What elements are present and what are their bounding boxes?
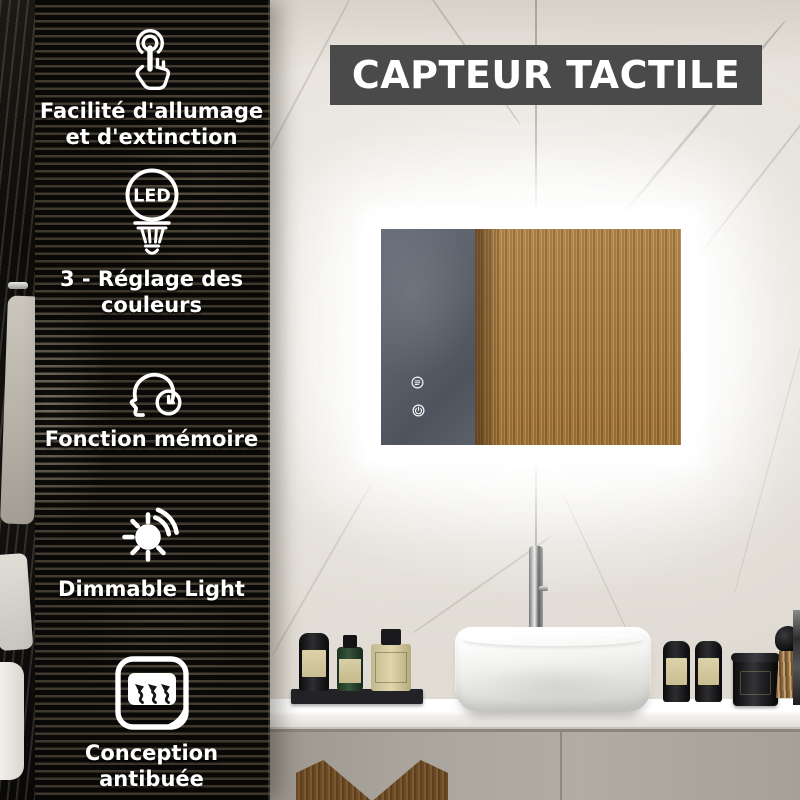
antifog-icon-svg [111,652,193,736]
cabinet-wood-inlay [296,760,448,800]
feature-text-line: Conception [35,740,268,766]
feature-text-line: Fonction mémoire [35,426,268,452]
product-marketing-image: CAPTEUR TACTILE Facilité d'allumage et d… [0,0,800,800]
toiletry-tray [291,689,423,704]
power-sensor-glyph [412,404,425,417]
vessel-sink [455,627,651,712]
antifog-icon [111,652,193,740]
led-bulb-icon: LED [116,166,188,264]
dimmable-sun-icon [111,498,193,572]
feature-text-line: antibuée [35,766,268,792]
light-settings-sensor-glyph [411,376,424,389]
flask-label [375,652,407,683]
perfume-flask [371,644,411,691]
bottle-cap [343,635,357,648]
razor-stand [793,610,800,705]
cosmetic-tube [299,633,329,691]
feature-sidebar: Facilité d'allumage et d'extinction LED … [35,0,270,800]
reflected-slate-wall [381,229,475,445]
banner-title: CAPTEUR TACTILE [352,53,740,97]
flask-cap [381,629,401,645]
tube-label [666,658,687,685]
faucet [529,546,543,631]
towel [0,553,33,651]
feature-text-line: couleurs [35,292,268,318]
led-mirror [368,216,694,458]
mirror-reflection [381,229,681,445]
led-bulb-icon-svg: LED [116,166,188,260]
reflected-wood-door [475,229,681,445]
bottle-label [339,659,361,683]
tube-label [698,658,719,685]
black-jar [733,653,778,706]
towel-hook [8,282,28,289]
feature-label-antifog: Conception antibuée [35,740,268,792]
jar-lid [731,653,780,662]
feature-text-line: 3 - Réglage des [35,266,268,292]
cabinet-door-seam [560,732,562,800]
cosmetic-tube [663,641,690,702]
touch-tap-icon-svg [121,28,183,90]
feature-label-memory: Fonction mémoire [35,426,268,452]
jar-label [740,671,771,695]
tube-label [302,650,326,677]
feature-banner: CAPTEUR TACTILE [330,45,762,105]
led-badge-text: LED [133,187,171,207]
cosmetic-tube [695,641,722,702]
faucet-lever [539,586,548,591]
feature-label-touch: Facilité d'allumage et d'extinction [35,98,268,150]
dark-marble-wall [0,0,40,800]
feature-text-line: Dimmable Light [35,576,268,602]
feature-label-dimmable: Dimmable Light [35,576,268,602]
memory-head-clock-icon [114,356,190,424]
dimmable-icon-svg [111,498,193,568]
memory-icon-svg [114,356,190,420]
feature-text-line: Facilité d'allumage [35,98,268,124]
green-bottle [337,647,363,691]
touch-tap-icon [121,28,183,94]
wood-triangle-pattern [296,760,448,800]
feature-text-line: et d'extinction [35,124,268,150]
vanity-cabinet [250,729,800,800]
towel [0,662,24,780]
power-sensor-icon [412,402,425,421]
light-settings-sensor-icon [411,374,424,393]
feature-label-colors: 3 - Réglage des couleurs [35,266,268,318]
